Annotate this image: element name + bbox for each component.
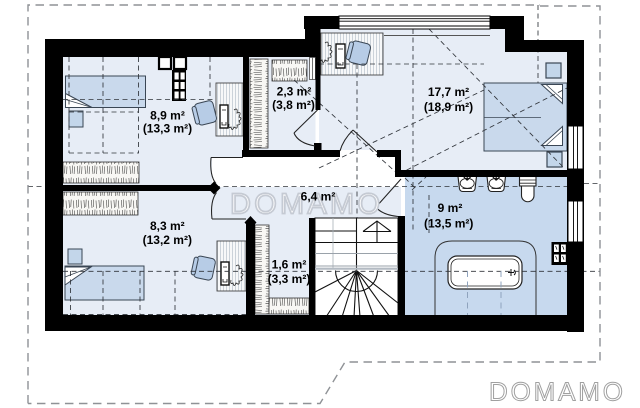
svg-text:8,9 m²: 8,9 m² — [150, 109, 185, 123]
svg-text:(3,8 m²): (3,8 m²) — [272, 98, 315, 112]
svg-text:6,4 m²: 6,4 m² — [301, 189, 336, 203]
svg-text:17,7 m²: 17,7 m² — [428, 85, 469, 99]
svg-text:(13,5 m²): (13,5 m²) — [424, 216, 473, 230]
svg-text:9 m²: 9 m² — [438, 201, 463, 215]
svg-text:(13,3 m²): (13,3 m²) — [143, 122, 192, 136]
svg-text:(13,2 m²): (13,2 m²) — [143, 233, 192, 247]
svg-text:(18,9 m²): (18,9 m²) — [424, 100, 473, 114]
svg-text:1,6 m²: 1,6 m² — [272, 258, 307, 272]
svg-text:2,3 m²: 2,3 m² — [277, 84, 312, 98]
svg-text:(3,3 m²): (3,3 m²) — [268, 272, 311, 286]
svg-text:8,3 m²: 8,3 m² — [150, 219, 185, 233]
